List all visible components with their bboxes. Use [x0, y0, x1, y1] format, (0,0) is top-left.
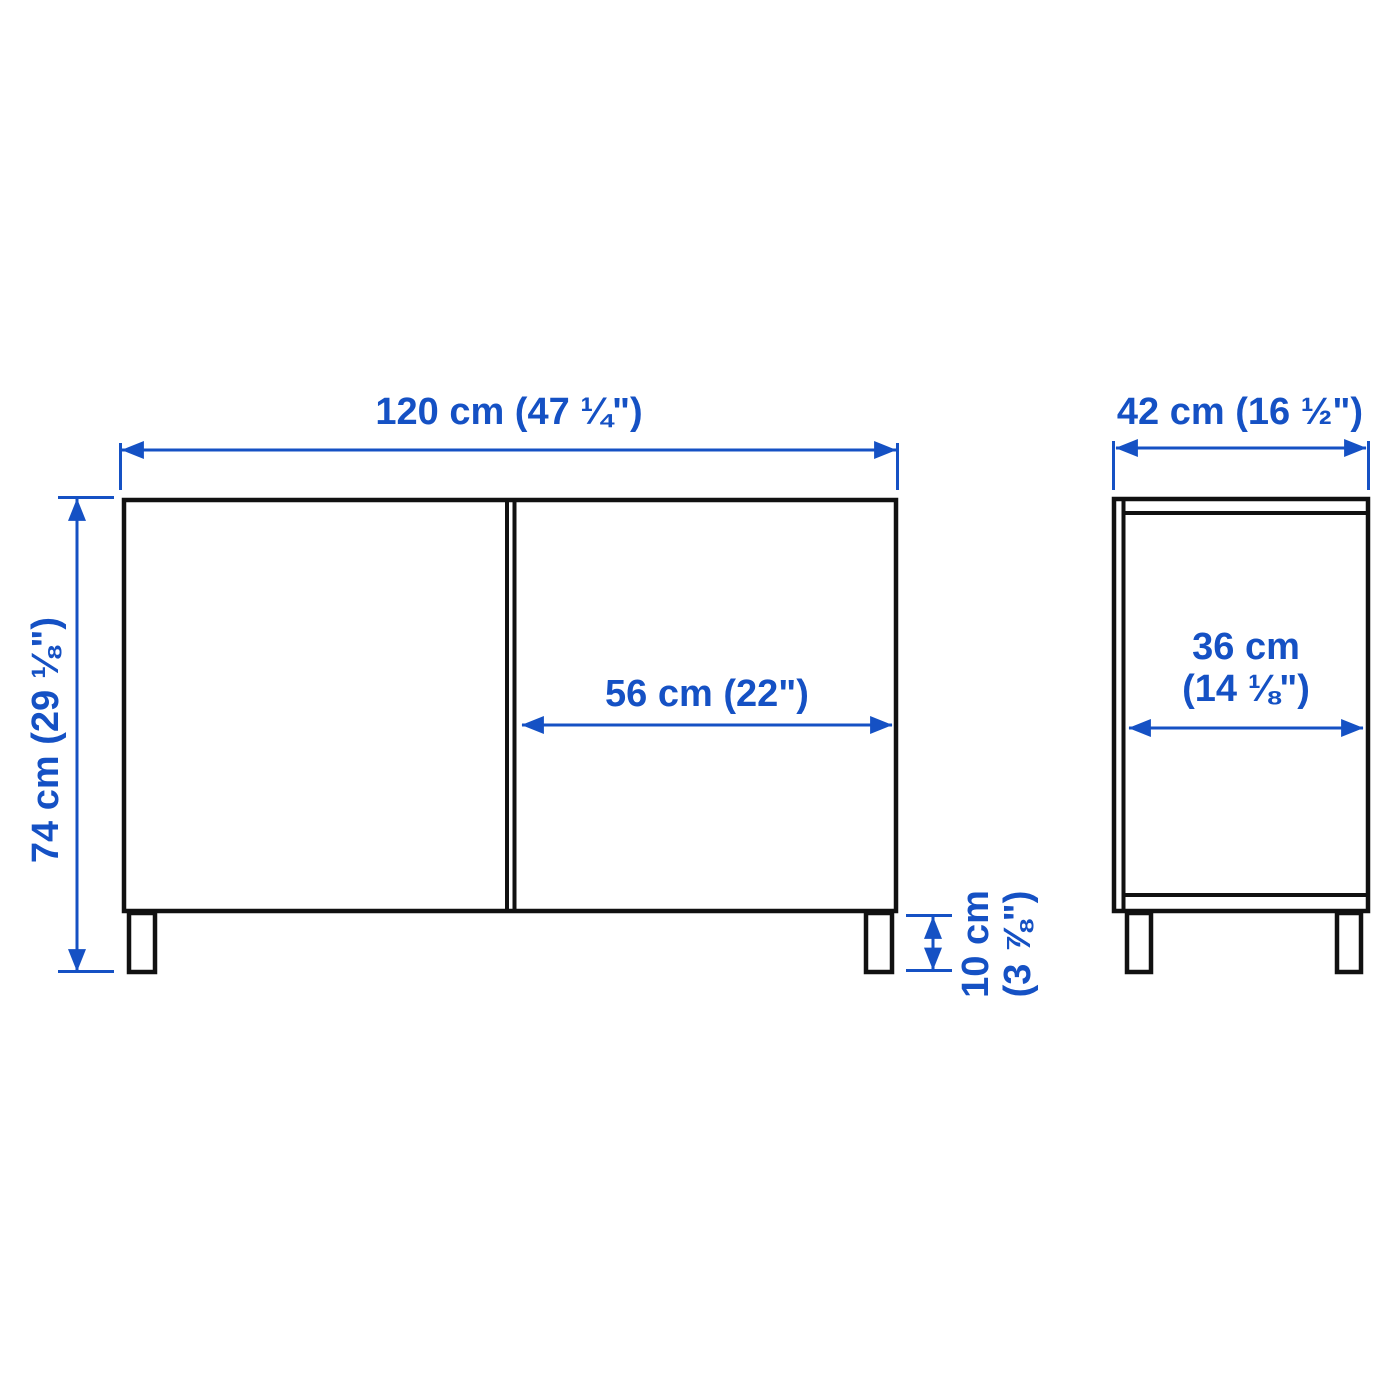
front-left-leg	[129, 913, 155, 972]
side-right-leg	[1337, 913, 1361, 972]
interior-depth-label-line2: (14 ⅛")	[1182, 668, 1310, 710]
depth-dimension-label: 42 cm (16 ½")	[1117, 391, 1363, 433]
dimension-diagram: 120 cm (47 ¼") 74 cm (29 ⅛") 56 cm (22")…	[0, 0, 1400, 1400]
interior-depth-dimension-label: 36 cm (14 ⅛")	[1182, 626, 1310, 710]
side-left-leg	[1127, 913, 1151, 972]
leg-height-label-line1: 10 cm	[955, 890, 997, 998]
leg-height-dimension-label: 10 cm (3 ⅞")	[955, 890, 1039, 998]
interior-depth-label-line1: 36 cm	[1182, 626, 1310, 668]
front-view	[124, 498, 896, 972]
front-right-leg	[866, 913, 892, 972]
side-view	[1114, 497, 1368, 972]
door-width-dimension-label: 56 cm (22")	[605, 673, 809, 715]
height-dimension-label: 74 cm (29 ⅛")	[25, 617, 67, 863]
leg-height-label-line2: (3 ⅞")	[997, 890, 1039, 998]
width-dimension-label: 120 cm (47 ¼")	[375, 391, 642, 433]
